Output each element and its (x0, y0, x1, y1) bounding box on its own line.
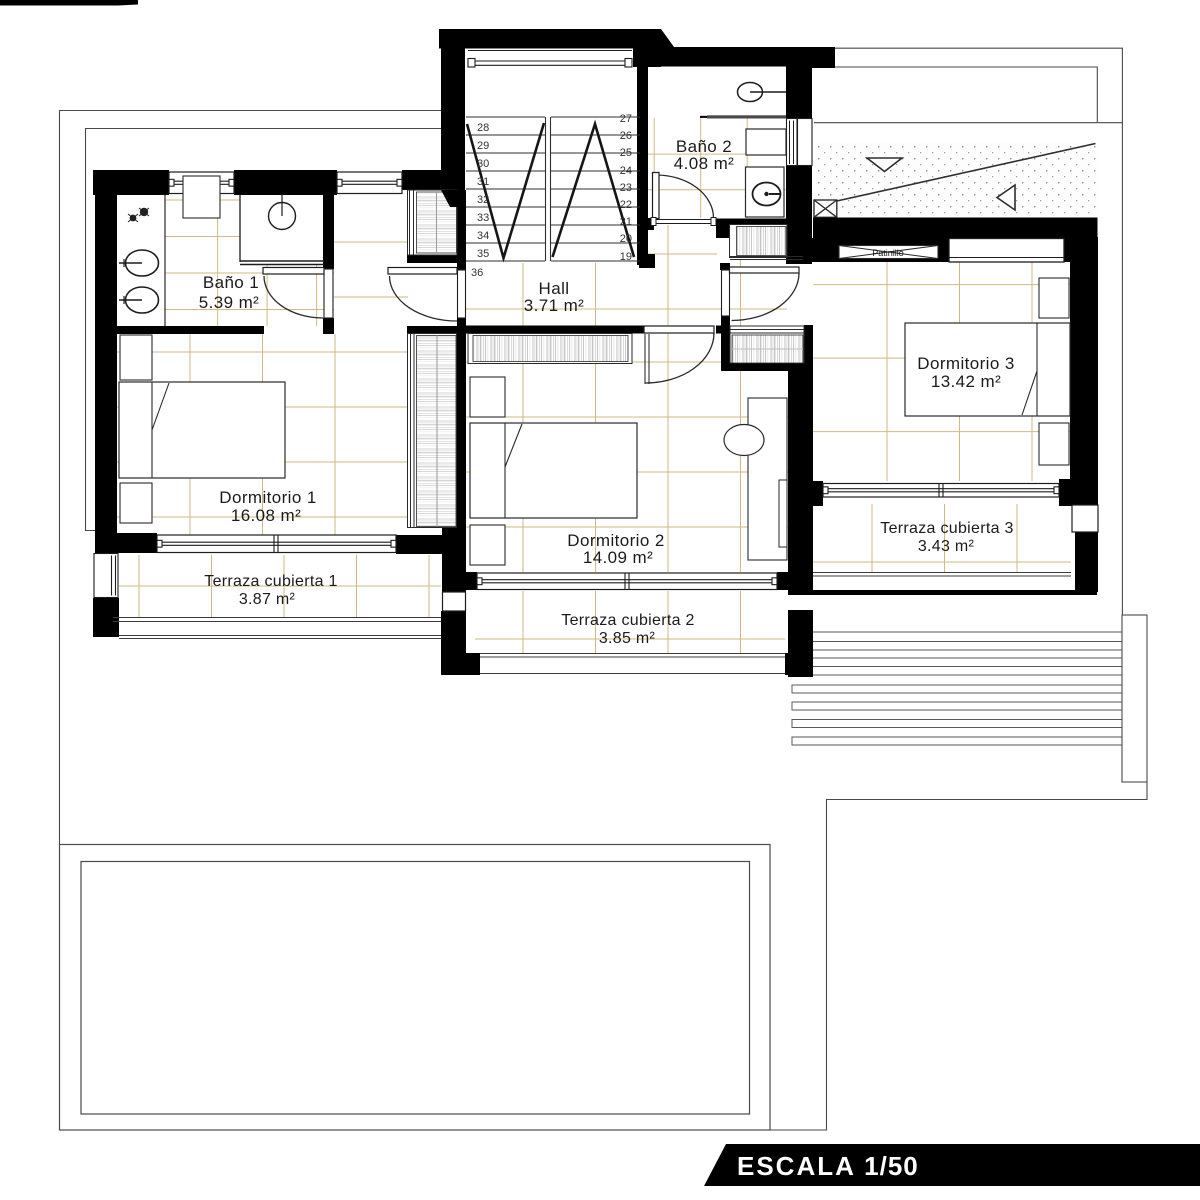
svg-text:23: 23 (620, 182, 632, 194)
svg-text:Terraza cubierta 3: Terraza cubierta 3 (880, 520, 1013, 537)
svg-text:19: 19 (620, 251, 632, 263)
svg-text:5.39 m²: 5.39 m² (199, 293, 259, 312)
svg-text:Terraza cubierta 2: Terraza cubierta 2 (561, 612, 694, 629)
svg-text:34: 34 (477, 230, 489, 242)
svg-text:35: 35 (477, 248, 489, 260)
svg-text:Baño 1: Baño 1 (203, 273, 259, 292)
svg-text:16.08 m²: 16.08 m² (231, 506, 301, 525)
svg-text:31: 31 (477, 176, 489, 188)
svg-text:Dormitorio 3: Dormitorio 3 (917, 354, 1014, 373)
svg-text:3.43 m²: 3.43 m² (918, 538, 975, 555)
svg-text:21: 21 (620, 216, 632, 228)
svg-text:4.08 m²: 4.08 m² (674, 154, 734, 173)
svg-text:36: 36 (471, 267, 483, 279)
svg-text:13.42 m²: 13.42 m² (931, 372, 1001, 391)
svg-text:26: 26 (620, 130, 632, 142)
svg-text:27: 27 (620, 113, 632, 125)
svg-text:32: 32 (477, 194, 489, 206)
svg-text:3.87 m²: 3.87 m² (239, 591, 296, 608)
svg-text:22: 22 (620, 199, 632, 211)
svg-text:20: 20 (620, 233, 632, 245)
svg-text:25: 25 (620, 147, 632, 159)
svg-text:Terraza cubierta 1: Terraza cubierta 1 (204, 573, 337, 590)
svg-text:3.85 m²: 3.85 m² (599, 630, 656, 647)
svg-text:14.09 m²: 14.09 m² (583, 548, 653, 567)
svg-text:Patinillo: Patinillo (872, 248, 904, 258)
svg-text:24: 24 (620, 165, 632, 177)
svg-text:33: 33 (477, 212, 489, 224)
svg-text:Dormitorio 1: Dormitorio 1 (219, 488, 316, 507)
svg-text:29: 29 (477, 140, 489, 152)
svg-text:30: 30 (477, 158, 489, 170)
svg-text:3.71 m²: 3.71 m² (524, 296, 584, 315)
svg-text:ESCALA 1/50: ESCALA 1/50 (737, 1151, 919, 1181)
svg-text:28: 28 (477, 122, 489, 134)
